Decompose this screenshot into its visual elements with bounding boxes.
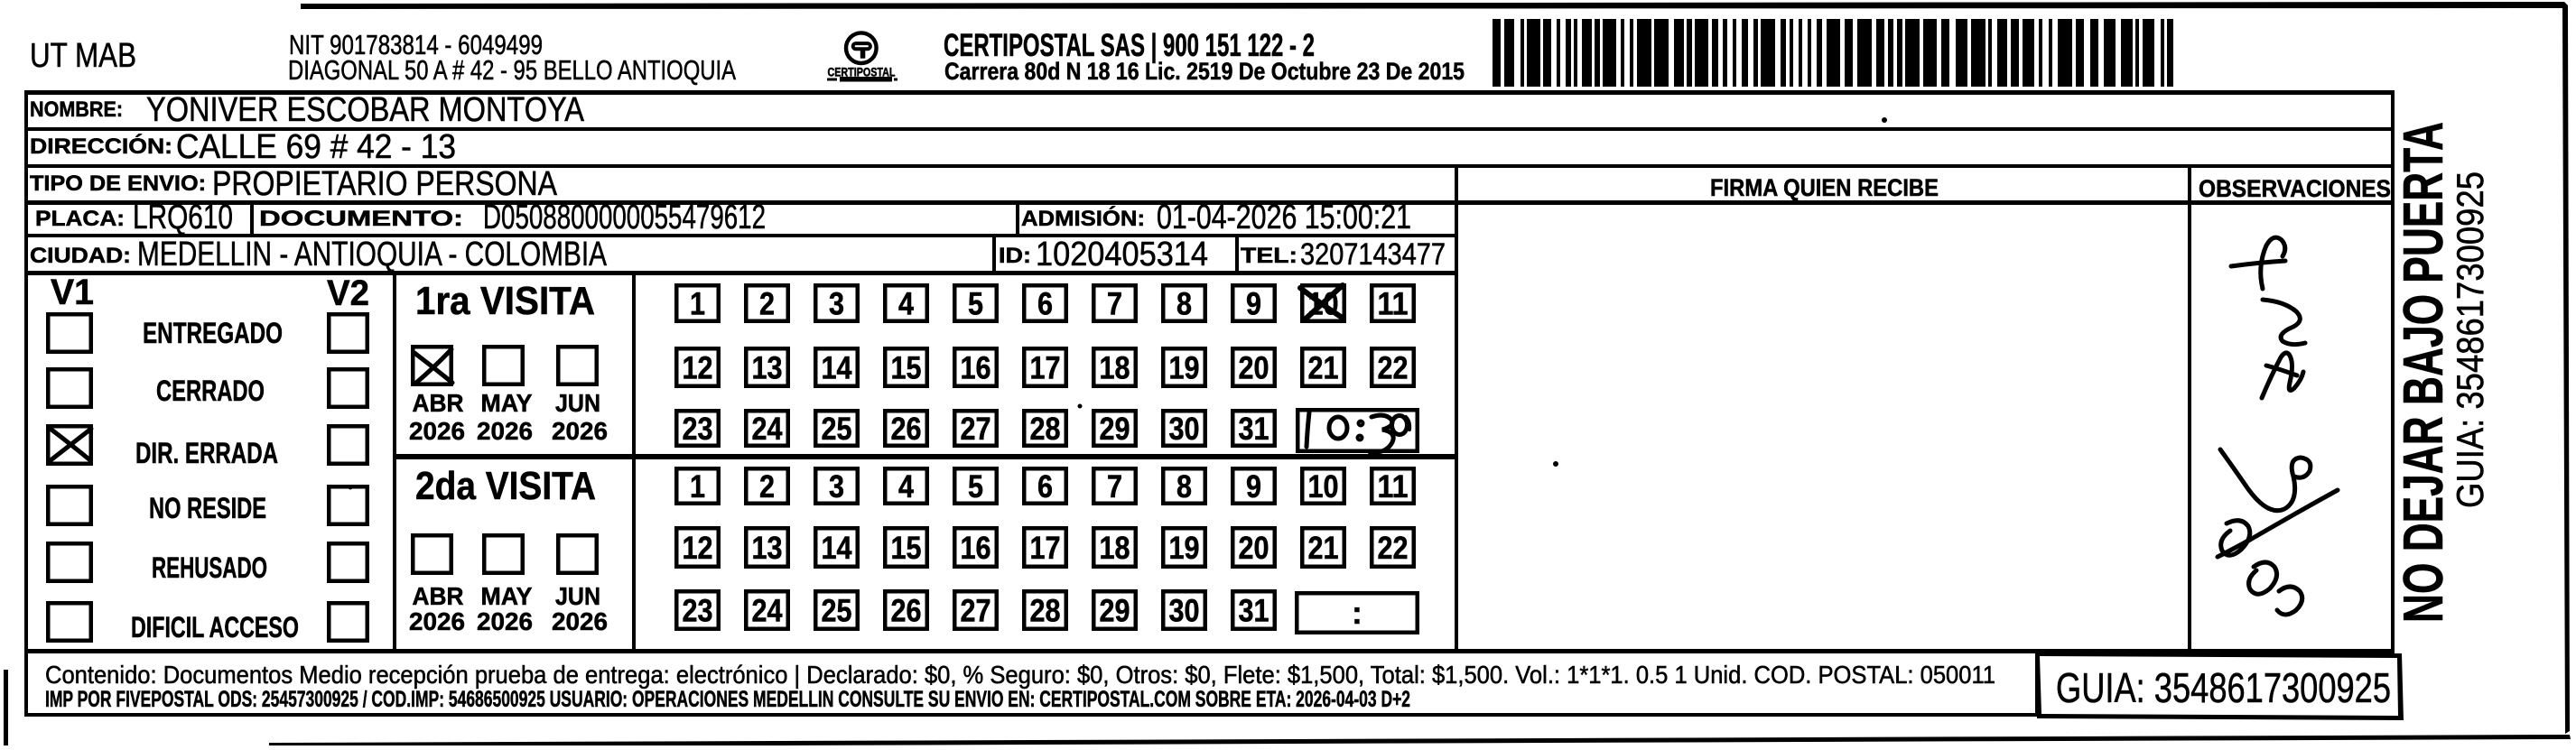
svg-text:6: 6 bbox=[1037, 469, 1053, 505]
svg-text:1: 1 bbox=[690, 287, 705, 322]
svg-text:CALLE 69 # 42 - 13: CALLE 69 # 42 - 13 bbox=[176, 128, 456, 166]
svg-text:ENTREGADO: ENTREGADO bbox=[143, 317, 283, 349]
svg-text:ABR: ABR bbox=[413, 389, 464, 417]
svg-text:CIUDAD:: CIUDAD: bbox=[30, 244, 131, 268]
svg-text:OBSERVACIONES: OBSERVACIONES bbox=[2199, 175, 2391, 202]
svg-text:2026: 2026 bbox=[409, 607, 465, 635]
svg-text:14: 14 bbox=[822, 531, 852, 566]
svg-text:GUIA: 3548617300925: GUIA: 3548617300925 bbox=[2449, 171, 2491, 508]
svg-text:JUN: JUN bbox=[555, 582, 600, 610]
svg-text:DIAGONAL 50 A # 42 - 95 BELLO: DIAGONAL 50 A # 42 - 95 BELLO ANTIOQUIA bbox=[288, 54, 736, 86]
svg-text:ABR: ABR bbox=[413, 582, 464, 610]
svg-text:CERRADO: CERRADO bbox=[156, 375, 265, 407]
svg-text:19: 19 bbox=[1169, 531, 1200, 566]
svg-text:9: 9 bbox=[1246, 287, 1261, 322]
svg-text:NO DEJAR BAJO PUERTA: NO DEJAR BAJO PUERTA bbox=[2393, 122, 2455, 623]
svg-text:28: 28 bbox=[1030, 412, 1061, 447]
svg-text:16: 16 bbox=[961, 531, 991, 566]
svg-text:01-04-2026 15:00:21: 01-04-2026 15:00:21 bbox=[1157, 199, 1411, 236]
svg-text:3: 3 bbox=[829, 469, 844, 505]
svg-text:1ra VISITA: 1ra VISITA bbox=[415, 279, 595, 323]
svg-text:17: 17 bbox=[1030, 351, 1061, 386]
svg-text:PROPIETARIO PERSONA: PROPIETARIO PERSONA bbox=[212, 165, 558, 203]
svg-text:22: 22 bbox=[1378, 531, 1409, 566]
svg-text:YONIVER ESCOBAR MONTOYA: YONIVER ESCOBAR MONTOYA bbox=[146, 91, 585, 129]
svg-text:4: 4 bbox=[898, 469, 914, 505]
svg-text:V2: V2 bbox=[327, 273, 369, 313]
svg-text:2026: 2026 bbox=[477, 417, 533, 445]
svg-text:ID:: ID: bbox=[999, 244, 1031, 268]
svg-text:25: 25 bbox=[822, 412, 852, 447]
svg-text:5: 5 bbox=[968, 287, 983, 322]
svg-text:13: 13 bbox=[752, 531, 783, 566]
svg-text:V1: V1 bbox=[51, 273, 94, 312]
svg-text:NOMBRE:: NOMBRE: bbox=[30, 97, 123, 122]
svg-text:20: 20 bbox=[1239, 351, 1269, 386]
svg-text:14: 14 bbox=[822, 351, 852, 386]
svg-text:9: 9 bbox=[1246, 469, 1261, 505]
svg-text:UT MAB: UT MAB bbox=[30, 37, 136, 75]
svg-text:11: 11 bbox=[1378, 287, 1409, 322]
svg-text:12: 12 bbox=[683, 351, 713, 386]
svg-text:PLACA:: PLACA: bbox=[35, 207, 125, 231]
svg-text:26: 26 bbox=[891, 594, 922, 629]
svg-text:10: 10 bbox=[1308, 469, 1339, 505]
svg-text:Carrera 80d N 18 16 Lic. 2519: Carrera 80d N 18 16 Lic. 2519 De Octubre… bbox=[944, 58, 1465, 85]
svg-text:21: 21 bbox=[1308, 531, 1339, 566]
svg-text:1020405314: 1020405314 bbox=[1036, 236, 1208, 273]
svg-text:2026: 2026 bbox=[552, 607, 608, 635]
svg-text:28: 28 bbox=[1030, 594, 1061, 629]
svg-text:GUIA: 3548617300925: GUIA: 3548617300925 bbox=[2056, 664, 2391, 711]
svg-text:13: 13 bbox=[752, 351, 783, 386]
svg-text:DIR. ERRADA: DIR. ERRADA bbox=[135, 437, 278, 469]
svg-text:5: 5 bbox=[968, 469, 983, 505]
svg-text:FIRMA QUIEN RECIBE: FIRMA QUIEN RECIBE bbox=[1710, 174, 1939, 201]
svg-text:24: 24 bbox=[752, 412, 783, 447]
svg-text:23: 23 bbox=[683, 412, 713, 447]
svg-text:2da VISITA: 2da VISITA bbox=[415, 464, 596, 508]
svg-text:15: 15 bbox=[891, 351, 922, 386]
svg-text:MAY: MAY bbox=[481, 582, 533, 610]
svg-text:2: 2 bbox=[759, 287, 775, 322]
svg-text:2026: 2026 bbox=[409, 417, 465, 445]
svg-text:17: 17 bbox=[1030, 531, 1061, 566]
svg-text::: : bbox=[1352, 596, 1362, 631]
svg-text:26: 26 bbox=[891, 412, 922, 447]
svg-text:30: 30 bbox=[1169, 594, 1200, 629]
svg-text:27: 27 bbox=[961, 594, 991, 629]
svg-text:31: 31 bbox=[1239, 594, 1269, 629]
svg-text:27: 27 bbox=[961, 412, 991, 447]
svg-text:8: 8 bbox=[1176, 287, 1192, 322]
svg-text:REHUSADO: REHUSADO bbox=[152, 551, 267, 584]
svg-text:IMP POR FIVEPOSTAL ODS: 254573: IMP POR FIVEPOSTAL ODS: 25457300925 / CO… bbox=[45, 687, 1410, 712]
svg-text:8: 8 bbox=[1176, 469, 1192, 505]
svg-text:21: 21 bbox=[1308, 351, 1339, 386]
svg-text:29: 29 bbox=[1100, 594, 1130, 629]
svg-text:2026: 2026 bbox=[477, 607, 533, 635]
svg-text:20: 20 bbox=[1239, 531, 1269, 566]
svg-text:DOCUMENTO:: DOCUMENTO: bbox=[259, 207, 463, 231]
svg-text:2026: 2026 bbox=[552, 417, 608, 445]
svg-text:3207143477: 3207143477 bbox=[1300, 237, 1446, 272]
svg-text:3: 3 bbox=[829, 287, 844, 322]
svg-text:7: 7 bbox=[1107, 287, 1122, 322]
svg-text:TEL:: TEL: bbox=[1241, 244, 1297, 268]
svg-text:19: 19 bbox=[1169, 351, 1200, 386]
svg-text:31: 31 bbox=[1239, 412, 1269, 447]
svg-text:2: 2 bbox=[759, 469, 775, 505]
svg-text:16: 16 bbox=[961, 351, 991, 386]
svg-text:1: 1 bbox=[690, 469, 705, 505]
svg-text:MEDELLIN - ANTIOQUIA - COLOMBI: MEDELLIN - ANTIOQUIA - COLOMBIA bbox=[137, 236, 608, 273]
svg-text:15: 15 bbox=[891, 531, 922, 566]
svg-text:6: 6 bbox=[1037, 287, 1053, 322]
svg-text:DIFICIL ACCESO: DIFICIL ACCESO bbox=[131, 611, 299, 644]
svg-text:18: 18 bbox=[1100, 531, 1130, 566]
svg-text:MAY: MAY bbox=[481, 389, 533, 417]
svg-text:LRQ610: LRQ610 bbox=[133, 199, 233, 236]
svg-text:11: 11 bbox=[1378, 469, 1409, 505]
svg-text:24: 24 bbox=[752, 594, 783, 629]
svg-text:22: 22 bbox=[1378, 351, 1409, 386]
svg-text:Contenido: Documentos Medio re: Contenido: Documentos Medio recepción pr… bbox=[45, 661, 1995, 689]
svg-text:DIRECCIÓN:: DIRECCIÓN: bbox=[30, 134, 172, 159]
svg-text:4: 4 bbox=[898, 287, 914, 322]
svg-text:30: 30 bbox=[1169, 412, 1200, 447]
svg-text:ADMISIÓN:: ADMISIÓN: bbox=[1021, 206, 1145, 231]
svg-text:23: 23 bbox=[683, 594, 713, 629]
svg-text:D0508800000055479612: D0508800000055479612 bbox=[483, 199, 766, 236]
svg-text:25: 25 bbox=[822, 594, 852, 629]
svg-text:TIPO DE ENVIO:: TIPO DE ENVIO: bbox=[30, 171, 206, 196]
svg-text:7: 7 bbox=[1107, 469, 1122, 505]
svg-text:NO RESIDE: NO RESIDE bbox=[149, 492, 266, 524]
svg-text:29: 29 bbox=[1100, 412, 1130, 447]
svg-text:18: 18 bbox=[1100, 351, 1130, 386]
svg-text:12: 12 bbox=[683, 531, 713, 566]
svg-text:JUN: JUN bbox=[555, 389, 600, 417]
